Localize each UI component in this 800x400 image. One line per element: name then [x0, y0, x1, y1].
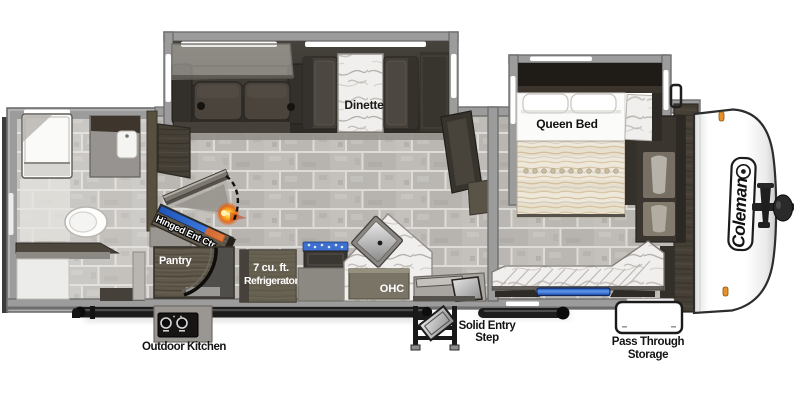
svg-text:Pass Through: Pass Through — [612, 336, 685, 348]
svg-text:Storage: Storage — [628, 349, 668, 361]
svg-text:Queen Bed: Queen Bed — [536, 117, 598, 131]
svg-text:Coleman: Coleman — [728, 178, 751, 249]
svg-text:7 cu. ft.: 7 cu. ft. — [253, 262, 289, 274]
svg-text:Outdoor Kitchen: Outdoor Kitchen — [142, 341, 226, 353]
svg-text:Step: Step — [475, 332, 499, 344]
svg-text:Refrigerator: Refrigerator — [244, 275, 299, 287]
svg-text:Solid Entry: Solid Entry — [459, 320, 517, 332]
svg-text:Pantry: Pantry — [159, 255, 192, 267]
svg-text:Dinette: Dinette — [344, 98, 384, 112]
svg-text:OHC: OHC — [380, 283, 405, 295]
